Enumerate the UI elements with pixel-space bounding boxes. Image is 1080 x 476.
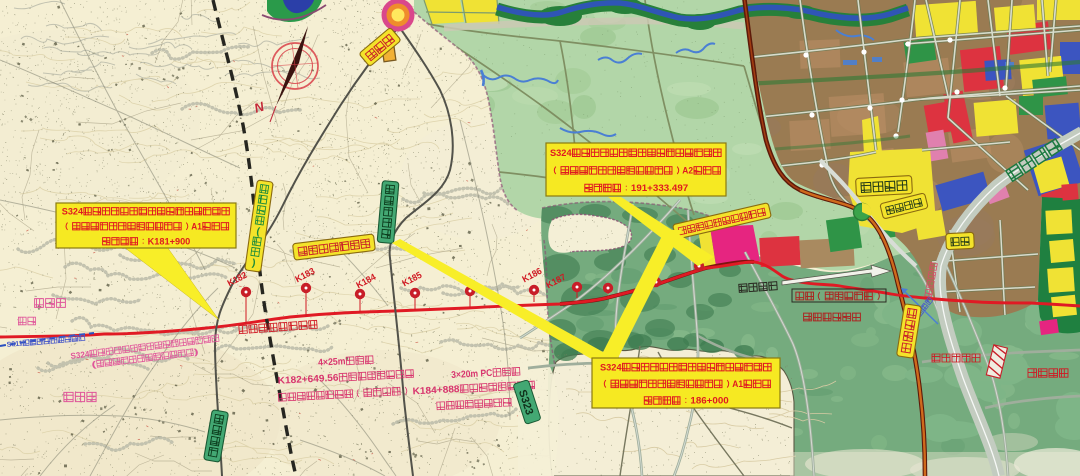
svg-text:A2: A2 xyxy=(682,166,693,177)
svg-text:S324: S324 xyxy=(550,148,572,159)
svg-text:S311: S311 xyxy=(6,339,23,348)
svg-text:A1: A1 xyxy=(732,379,743,390)
svg-text:191+333.497: 191+333.497 xyxy=(631,183,688,194)
svg-text:4×25m: 4×25m xyxy=(318,356,346,368)
svg-text:3×20m PC: 3×20m PC xyxy=(451,368,493,381)
svg-text:S324: S324 xyxy=(62,205,84,216)
svg-text:K181+900: K181+900 xyxy=(148,235,191,246)
svg-text:S324: S324 xyxy=(600,362,622,373)
svg-text:A1: A1 xyxy=(191,220,202,231)
svg-text:186+000: 186+000 xyxy=(690,396,728,407)
